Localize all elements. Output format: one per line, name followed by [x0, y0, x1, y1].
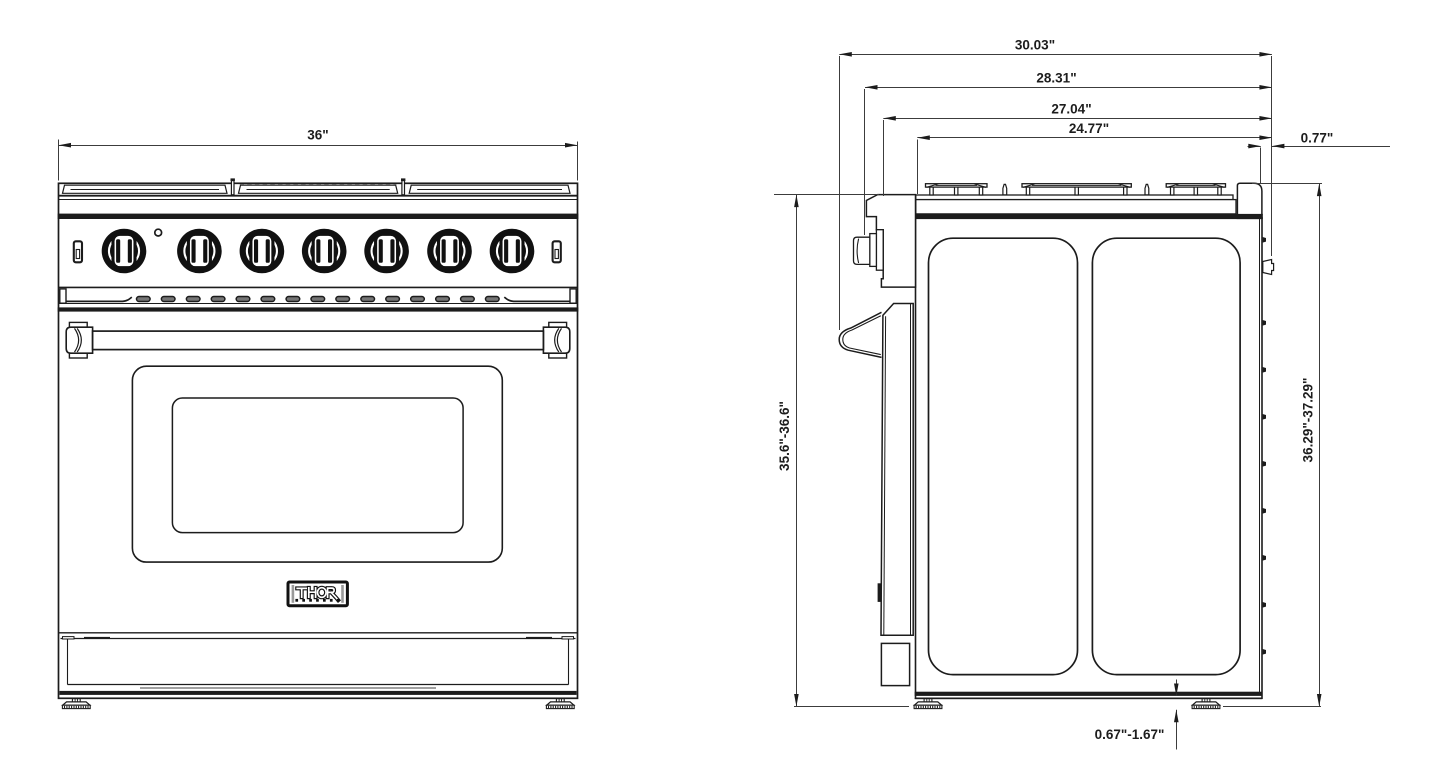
svg-text:28.31": 28.31"	[1036, 71, 1076, 86]
svg-text:30.03": 30.03"	[1015, 38, 1055, 53]
svg-text:36.29"-37.29": 36.29"-37.29"	[1301, 378, 1316, 463]
svg-text:36": 36"	[307, 128, 328, 143]
svg-text:0.77": 0.77"	[1301, 131, 1334, 146]
svg-text:27.04": 27.04"	[1051, 102, 1091, 117]
svg-text:35.6"-36.6": 35.6"-36.6"	[777, 401, 792, 471]
svg-text:24.77": 24.77"	[1069, 121, 1109, 136]
svg-text:0.67"-1.67": 0.67"-1.67"	[1095, 727, 1165, 742]
